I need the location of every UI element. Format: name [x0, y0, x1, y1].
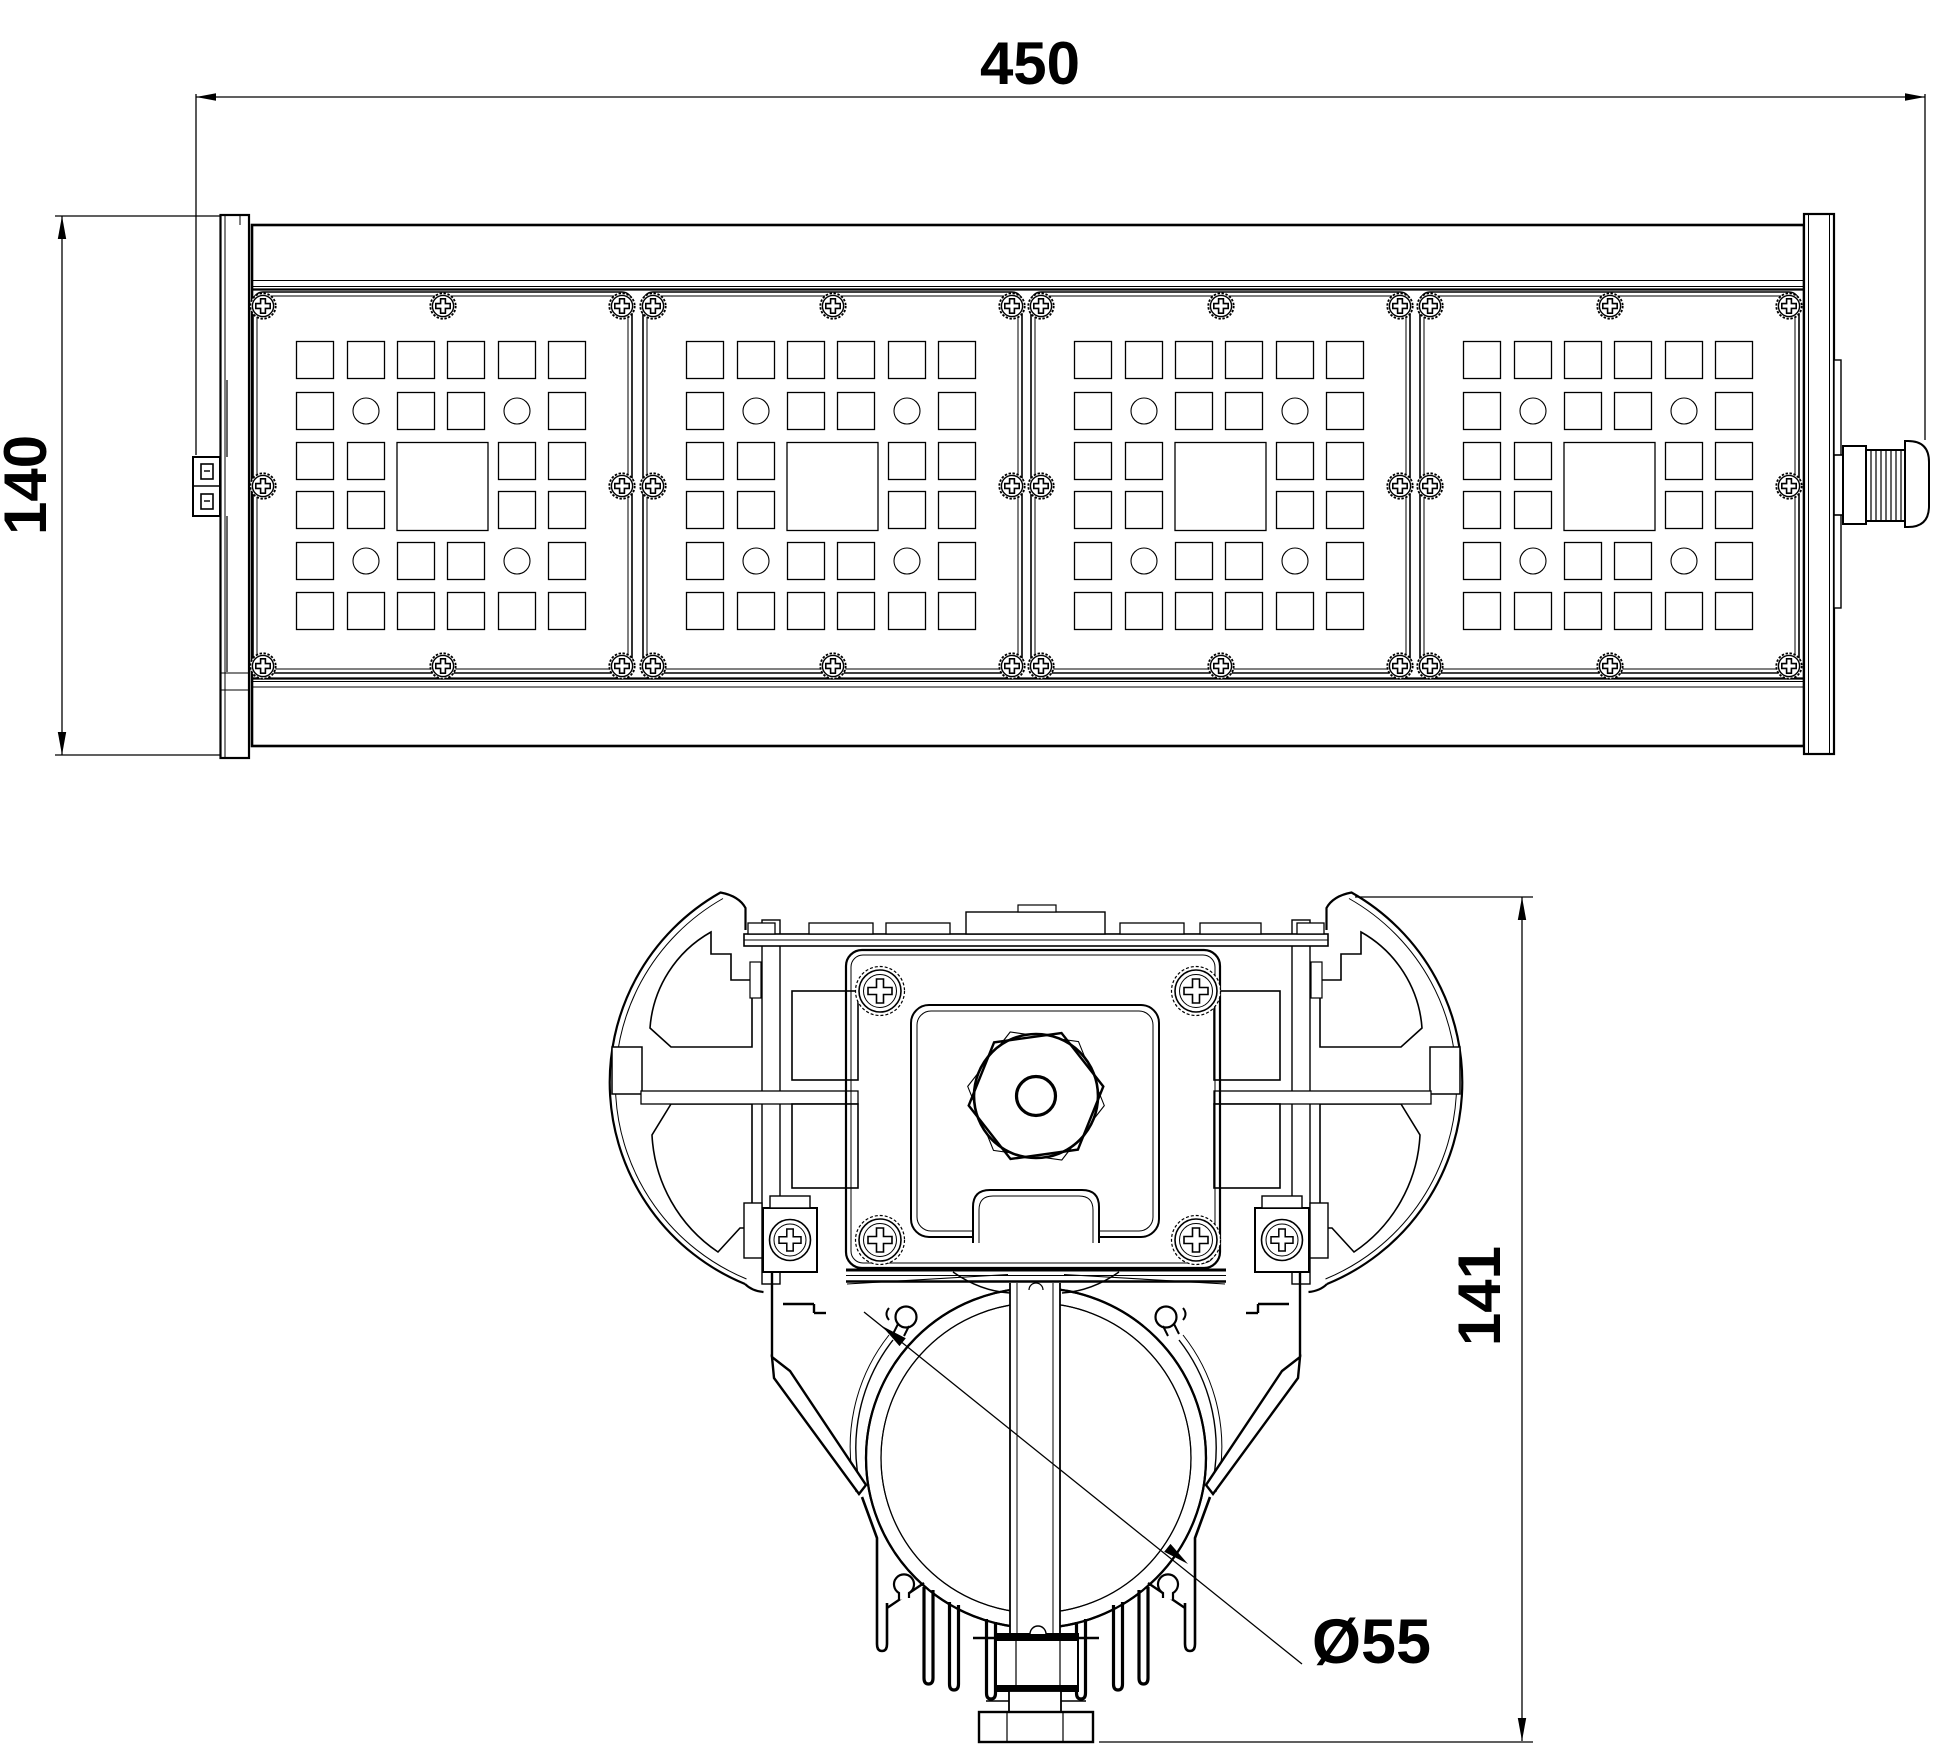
- svg-text:140: 140: [0, 435, 59, 535]
- svg-text:450: 450: [980, 30, 1080, 97]
- svg-text:141: 141: [1446, 1246, 1513, 1346]
- svg-text:Ø55: Ø55: [1312, 1607, 1431, 1677]
